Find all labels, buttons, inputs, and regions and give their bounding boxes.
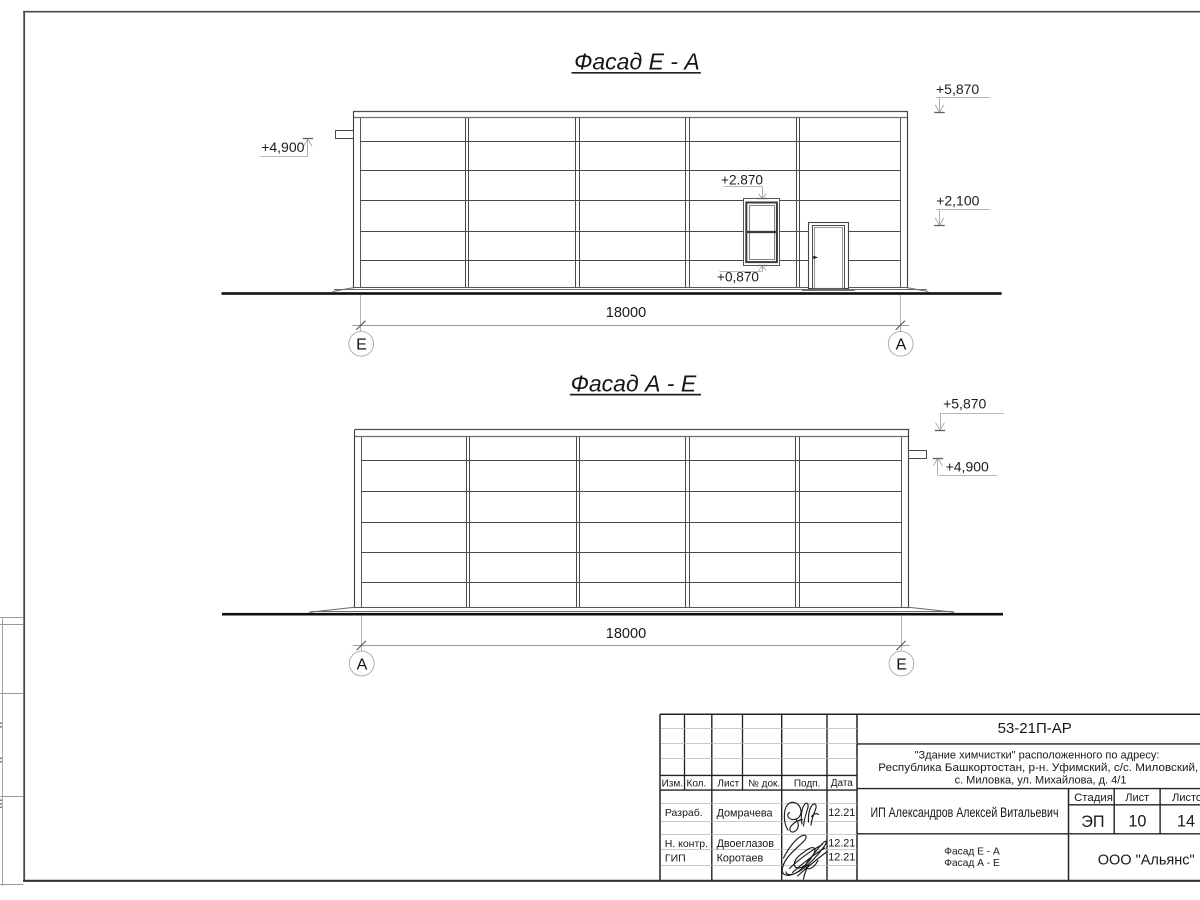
svg-text:Подп.: Подп.	[794, 778, 821, 789]
svg-text:Е: Е	[896, 656, 907, 673]
svg-text:ЭП: ЭП	[1081, 813, 1104, 831]
svg-text:Дата: Дата	[831, 778, 854, 789]
svg-text:Республика Башкортостан, р-н.: Республика Башкортостан, р-н. Уфимский, …	[878, 762, 1198, 774]
svg-text:Н. контр.: Н. контр.	[665, 838, 708, 850]
svg-text:ООО "Альянс": ООО "Альянс"	[1098, 853, 1195, 869]
svg-text:+2.870: +2.870	[721, 172, 763, 187]
svg-text:+5,870: +5,870	[943, 395, 986, 411]
svg-text:Домрачева: Домрачева	[717, 807, 773, 819]
svg-text:№ док.: № док.	[748, 778, 780, 789]
svg-text:Коротаев: Коротаев	[717, 853, 764, 865]
svg-text:Е: Е	[356, 337, 367, 354]
svg-text:"Здание химчистки" расположенн: "Здание химчистки" расположенного по адр…	[915, 750, 1160, 762]
svg-text:Лист: Лист	[717, 778, 739, 789]
svg-text:10: 10	[1128, 813, 1146, 831]
svg-text:12.21: 12.21	[828, 837, 855, 849]
svg-text:Двоеглазов: Двоеглазов	[717, 838, 775, 850]
svg-text:12.21: 12.21	[828, 852, 855, 864]
svg-text:Фасад А - Е: Фасад А - Е	[944, 858, 1000, 869]
svg-text:18000: 18000	[606, 626, 647, 642]
svg-text:А: А	[896, 337, 907, 354]
svg-text:ГИП: ГИП	[665, 853, 686, 865]
svg-text:Листов: Листов	[1172, 792, 1200, 804]
svg-text:с. Миловка, ул. Михайлова, д.: с. Миловка, ул. Михайлова, д. 4/1	[955, 775, 1127, 787]
svg-text:+5,870: +5,870	[936, 81, 979, 97]
svg-text:14: 14	[1177, 813, 1195, 831]
svg-text:Изм.: Изм.	[662, 778, 683, 789]
svg-text:А: А	[357, 656, 368, 673]
svg-text:Лист: Лист	[1125, 792, 1149, 804]
svg-text:ИП Александров Алексей Виталье: ИП Александров Алексей Витальевич	[871, 805, 1059, 820]
svg-text:+4,900: +4,900	[946, 458, 989, 474]
svg-text:+4,900: +4,900	[261, 139, 304, 155]
svg-text:53-21П-АР: 53-21П-АР	[998, 720, 1072, 737]
svg-text:+0,870: +0,870	[717, 269, 759, 284]
svg-text:Фасад Е - А: Фасад Е - А	[944, 847, 1000, 858]
svg-text:+2,100: +2,100	[936, 193, 979, 209]
svg-text:Фасад Е - А: Фасад Е - А	[574, 48, 700, 74]
svg-text:18000: 18000	[606, 305, 647, 321]
svg-text:Стадия: Стадия	[1074, 792, 1113, 804]
svg-text:Кол.: Кол.	[687, 778, 707, 789]
svg-text:Разраб.: Разраб.	[665, 807, 703, 819]
svg-text:12.21: 12.21	[828, 807, 855, 819]
svg-text:Фасад А - Е: Фасад А - Е	[571, 370, 697, 396]
